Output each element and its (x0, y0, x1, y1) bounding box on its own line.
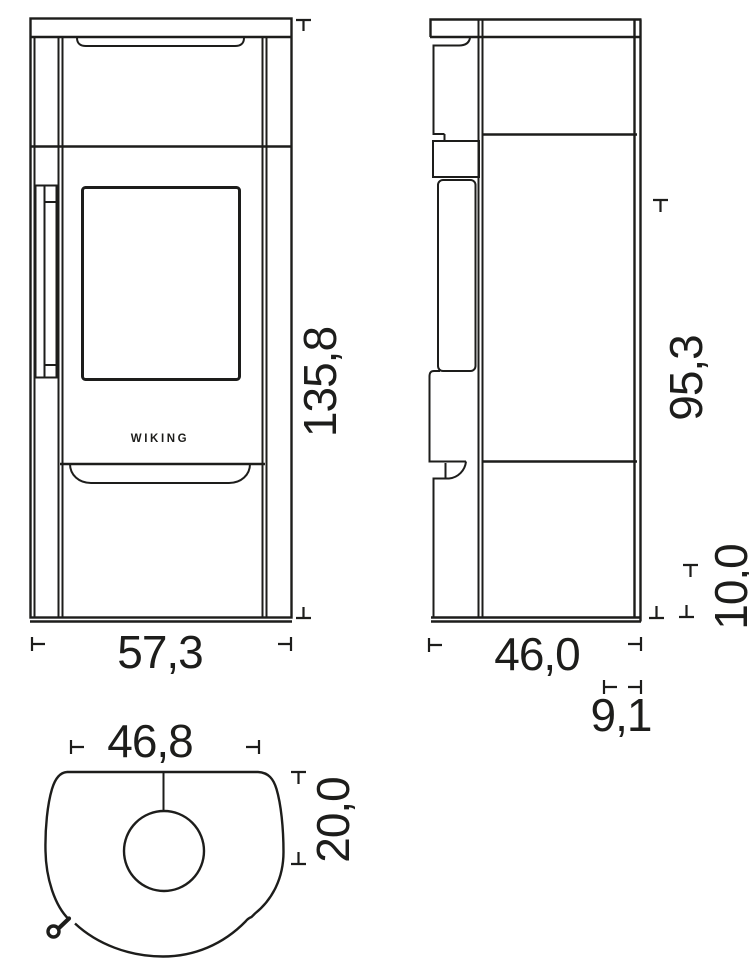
dimension-tick (291, 852, 306, 864)
dimension-tick (296, 607, 311, 618)
dimension-label-side-rear-offset: 9,1 (591, 689, 652, 741)
dimension-label-front-width: 57,3 (117, 626, 203, 678)
side-door-upper-panel (434, 38, 471, 140)
dim-front-height: 135,8 (294, 20, 346, 618)
front-ash-lip (70, 464, 250, 483)
dim-top-flue-depth: 20,0 (291, 772, 359, 864)
dimension-tick (683, 565, 698, 577)
front-door-frame-left (59, 37, 63, 617)
top-view: 46,8 20,0 (45, 715, 359, 957)
handle-stub (59, 919, 69, 929)
side-view: 46,0 95,3 10,0 9,1 (429, 20, 749, 742)
dimension-tick (429, 638, 442, 652)
dim-front-width: 57,3 (32, 626, 291, 678)
front-door-handle (36, 186, 57, 378)
dimension-tick (278, 637, 291, 651)
side-door-lower-panel (430, 371, 467, 462)
dimension-tick (653, 200, 668, 212)
dim-side-rear-offset: 9,1 (591, 680, 652, 741)
dim-side-rear-height: 95,3 (649, 200, 712, 618)
front-door-frame-right (263, 37, 267, 617)
dimension-label-side-base-height: 10,0 (705, 544, 749, 630)
drawing-svg: WIKING 57,3 135,8 (0, 0, 749, 973)
dimension-label-side-rear-height: 95,3 (660, 335, 712, 421)
side-handle-bar (438, 180, 476, 371)
side-top-plate-line (431, 20, 642, 38)
front-glass-window (83, 188, 240, 380)
dimension-label-side-depth: 46,0 (494, 628, 580, 680)
side-door-profile (430, 38, 480, 617)
brand-logo: WIKING (131, 433, 189, 445)
dimension-tick (296, 20, 311, 31)
top-outline-front (67, 772, 284, 957)
handle-ring (48, 926, 59, 937)
dimension-tick (679, 605, 694, 617)
front-body-outline (31, 19, 292, 618)
dimension-tick (291, 772, 306, 784)
front-air-slot (77, 38, 244, 46)
dim-side-depth: 46,0 (429, 628, 641, 680)
handle-crossbars (45, 202, 57, 365)
side-base-lines (431, 618, 641, 622)
dimension-tick (649, 606, 664, 618)
stove-technical-drawing: WIKING 57,3 135,8 (0, 0, 749, 973)
handle-outer (36, 186, 57, 378)
top-outline-left (45, 772, 69, 920)
side-ash-lip (434, 462, 467, 618)
dimension-tick (71, 740, 84, 754)
dimension-tick (246, 740, 259, 754)
dimension-tick (628, 637, 641, 651)
dim-top-width: 46,8 (71, 715, 259, 767)
side-handle-mount (433, 141, 479, 177)
dimension-tick (32, 637, 45, 651)
dimension-label-front-height: 135,8 (294, 327, 346, 437)
top-flue-collar (124, 811, 204, 891)
top-door-handle-knob (48, 919, 69, 938)
dimension-label-top-flue-depth: 20,0 (307, 777, 359, 863)
front-view: WIKING 57,3 135,8 (30, 19, 346, 679)
dim-side-base-height: 10,0 (679, 544, 749, 630)
dimension-label-top-width: 46,8 (107, 715, 193, 767)
